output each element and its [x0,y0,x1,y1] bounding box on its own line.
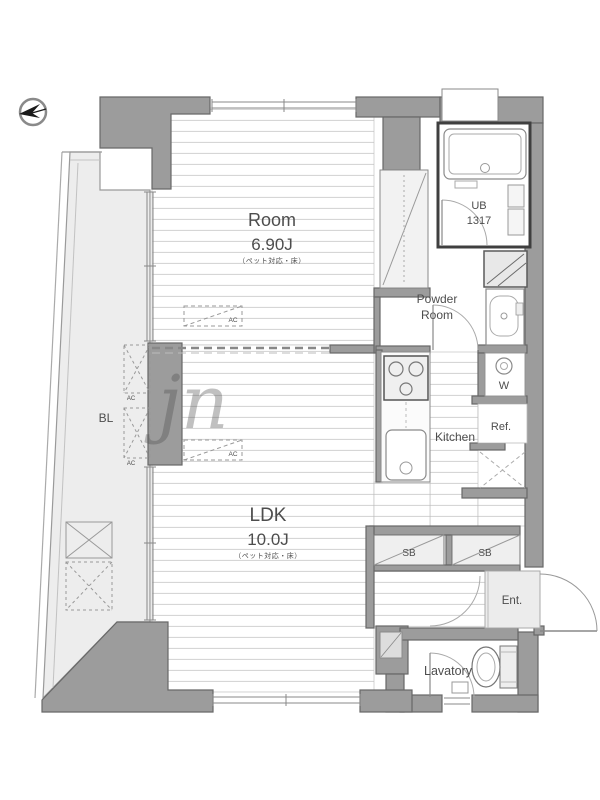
ac-ldk-label: AC [228,451,237,458]
washer-label: W [499,380,510,392]
sink [386,430,426,480]
kitchen-label: Kitchen [435,430,475,444]
closet [380,170,428,288]
shoe-box-2-label: SB [478,548,492,559]
wall-lavatory-bottom-right [472,695,538,712]
wall-partition-end [330,345,374,353]
wall-powder-left [374,297,380,353]
bathtub [444,129,526,179]
shoe-box-1-label: SB [402,548,416,559]
powder-room-label-1: Powder [417,292,458,306]
powder-room-label-2: Room [421,308,453,322]
wall-ldk-hall [366,526,374,628]
wall-hall-upper [462,488,527,498]
connector-floor [374,482,430,530]
hall-floor-upper [478,498,525,526]
wall-closet-top [383,117,420,170]
stove [384,356,428,400]
unit-bath [438,123,530,247]
wall-sb-top [370,526,520,535]
entrance-label: Ent. [502,595,522,607]
wall-washer-left [478,353,485,396]
bath-counter [508,185,524,207]
ub-label: UB [471,200,486,212]
ub-size-label: 1317 [467,215,491,227]
ldk-size-label: 10.0J [247,530,289,549]
ldk-note-label: （ペット対応・床） [234,551,302,560]
floor-plan-canvas: jn Room 6.90J （ペット対応・床） LDK 10.0J （ペット対応… [0,0,600,800]
ac-balcony-lower-label: AC [127,461,136,467]
wall-ref-bottom [470,443,505,450]
ac-room-label: AC [228,317,237,324]
hall-floor [374,571,485,628]
wall-bottom-right [360,690,412,712]
wall-washer-top [478,345,527,353]
room-note-label: （ペット対応・床） [238,256,306,265]
balcony-label: BL [99,411,114,425]
refrigerator-label: Ref. [491,421,511,433]
ldk-label: LDK [250,505,287,526]
ac-balcony-upper-label: AC [127,396,136,402]
compass-icon [19,99,46,125]
kitchen-counter [381,352,430,482]
wall-sb-bottom [372,565,520,571]
floor-plan-page: jn Room 6.90J （ペット対応・床） LDK 10.0J （ペット対応… [0,0,600,800]
lavatory-label: Lavatory [424,664,473,678]
room-size-label: 6.90J [251,235,293,254]
lavatory-sink [452,682,468,693]
wall-top-mid [356,97,440,117]
room-label: Room [248,210,296,230]
wall-ent-lavatory [400,628,518,640]
wall-sb-divider [446,535,452,565]
wall-washer-bottom [472,396,527,404]
duct-notch [442,89,498,121]
entrance-door-arc [540,574,597,631]
